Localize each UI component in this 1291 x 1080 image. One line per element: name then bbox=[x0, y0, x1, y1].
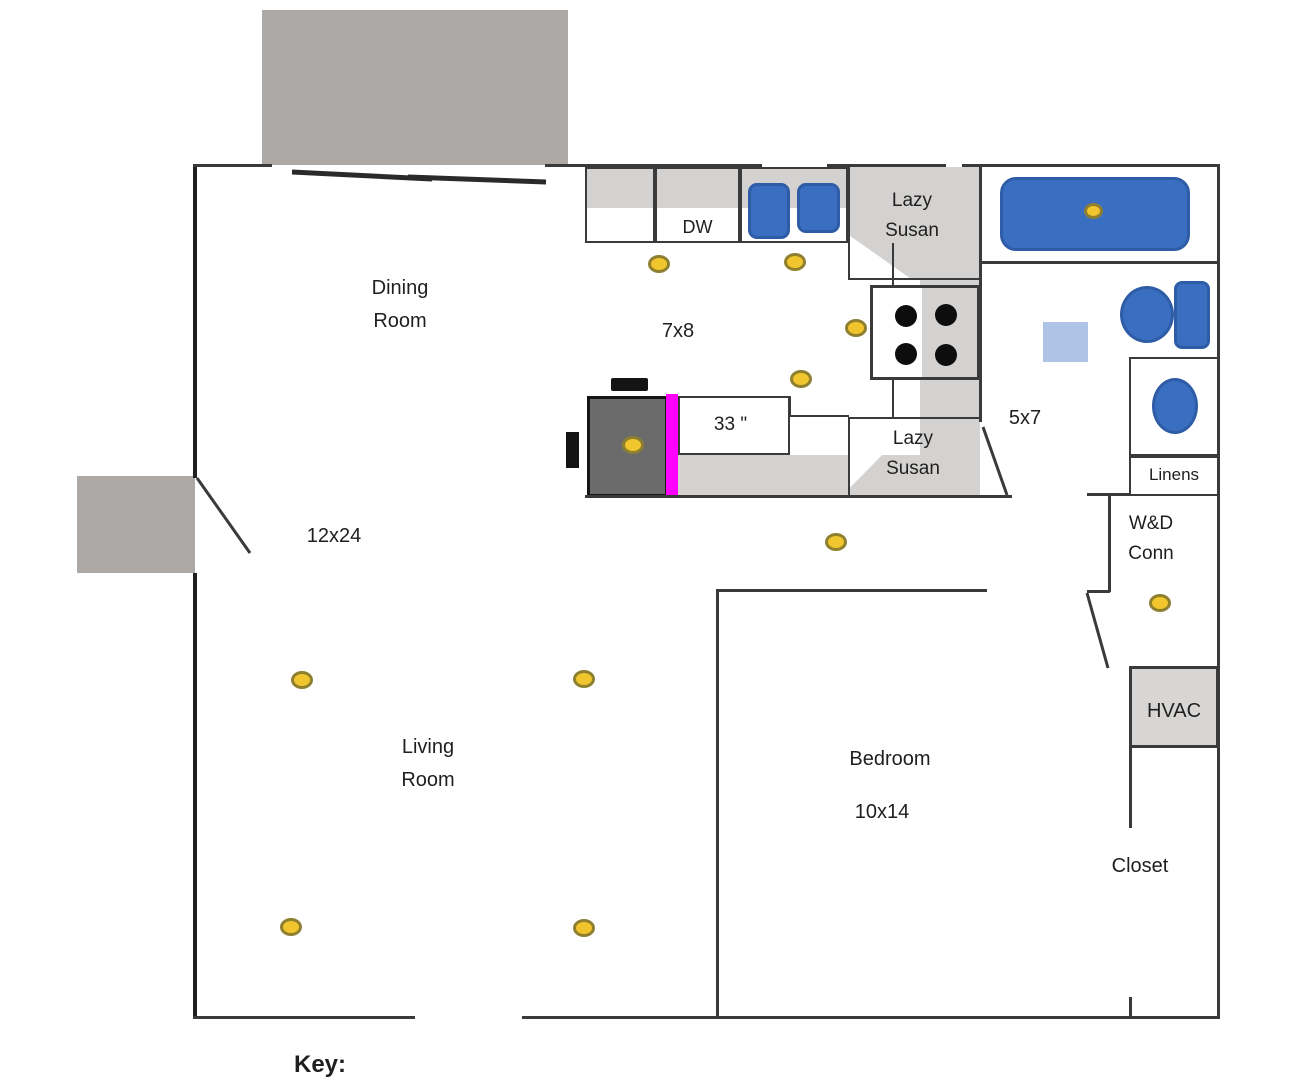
ceiling-light-icon bbox=[845, 319, 867, 337]
kitchen-sink-right bbox=[797, 183, 840, 233]
wall bbox=[1129, 997, 1132, 1019]
wall bbox=[716, 589, 987, 592]
living-room-label: Living Room bbox=[391, 731, 465, 797]
bath-size-label: 5x7 bbox=[985, 402, 1065, 435]
wall bbox=[979, 264, 982, 422]
wall bbox=[193, 1016, 415, 1019]
wall bbox=[193, 164, 197, 478]
stove-burner-icon bbox=[935, 304, 957, 326]
key-label: Key: bbox=[294, 1048, 384, 1080]
ceiling-light-icon bbox=[1149, 594, 1171, 612]
ceiling-light-icon bbox=[573, 919, 595, 937]
linens-label: Linens bbox=[1131, 461, 1217, 489]
cabinet-cell bbox=[585, 167, 655, 243]
kitchen-sink-left bbox=[748, 183, 790, 239]
ceiling-light-icon bbox=[825, 533, 847, 551]
counter-edge bbox=[892, 243, 894, 287]
wall bbox=[1129, 748, 1132, 828]
magenta-marker bbox=[666, 394, 678, 495]
vent-mark bbox=[566, 432, 579, 468]
wall bbox=[1217, 164, 1220, 1019]
wall bbox=[193, 164, 272, 167]
bath-mat bbox=[1043, 322, 1088, 362]
wall bbox=[585, 495, 1012, 498]
lazy-susan-bottom-label: Lazy Susan bbox=[884, 424, 942, 484]
ceiling-light-icon bbox=[790, 370, 812, 388]
front-stoop bbox=[77, 476, 195, 573]
toilet-bowl bbox=[1120, 286, 1174, 343]
wd-conn-label: W&D Conn bbox=[1120, 509, 1182, 569]
ceiling-light-icon bbox=[573, 670, 595, 688]
wall bbox=[827, 164, 946, 167]
wall bbox=[962, 164, 1220, 167]
deck bbox=[262, 10, 568, 165]
closet-label: Closet bbox=[1090, 850, 1190, 883]
counter-edge bbox=[892, 378, 894, 419]
ceiling-light-icon bbox=[291, 671, 313, 689]
counter-width-label: 33 " bbox=[678, 410, 783, 440]
counter-step bbox=[789, 396, 791, 417]
stove-burner-icon bbox=[895, 305, 917, 327]
lazy-susan-top-label: Lazy Susan bbox=[883, 186, 941, 246]
stove bbox=[870, 285, 980, 380]
bathroom-sink bbox=[1152, 378, 1198, 434]
wall bbox=[522, 1016, 1220, 1019]
bedroom-label: Bedroom bbox=[830, 743, 950, 776]
ceiling-light-icon bbox=[622, 436, 644, 454]
floor-plan: Dining Room 7x8 DW Lazy Susan Lazy Susan… bbox=[0, 0, 1291, 1080]
ceiling-light-icon bbox=[784, 253, 806, 271]
wall bbox=[545, 164, 762, 167]
dining-room-label: Dining Room bbox=[363, 272, 437, 338]
counter-step bbox=[789, 415, 849, 417]
wall bbox=[1087, 590, 1110, 593]
dishwasher-label: DW bbox=[655, 212, 740, 242]
hvac-label: HVAC bbox=[1132, 695, 1216, 728]
wall bbox=[980, 261, 1220, 264]
ceiling-light-icon bbox=[648, 255, 670, 273]
wall bbox=[979, 164, 982, 264]
ceiling-light-icon bbox=[1084, 203, 1103, 219]
wall bbox=[716, 589, 719, 1019]
living-size-label: 12x24 bbox=[294, 520, 374, 553]
wall bbox=[193, 573, 197, 1018]
stove-burner-icon bbox=[895, 343, 917, 365]
vent-mark bbox=[611, 378, 648, 391]
kitchen-size-label: 7x8 bbox=[638, 315, 718, 348]
ceiling-light-icon bbox=[280, 918, 302, 936]
bedroom-size-label: 10x14 bbox=[827, 796, 937, 829]
stove-burner-icon bbox=[935, 344, 957, 366]
wall bbox=[1108, 495, 1111, 592]
toilet-tank bbox=[1174, 281, 1210, 349]
